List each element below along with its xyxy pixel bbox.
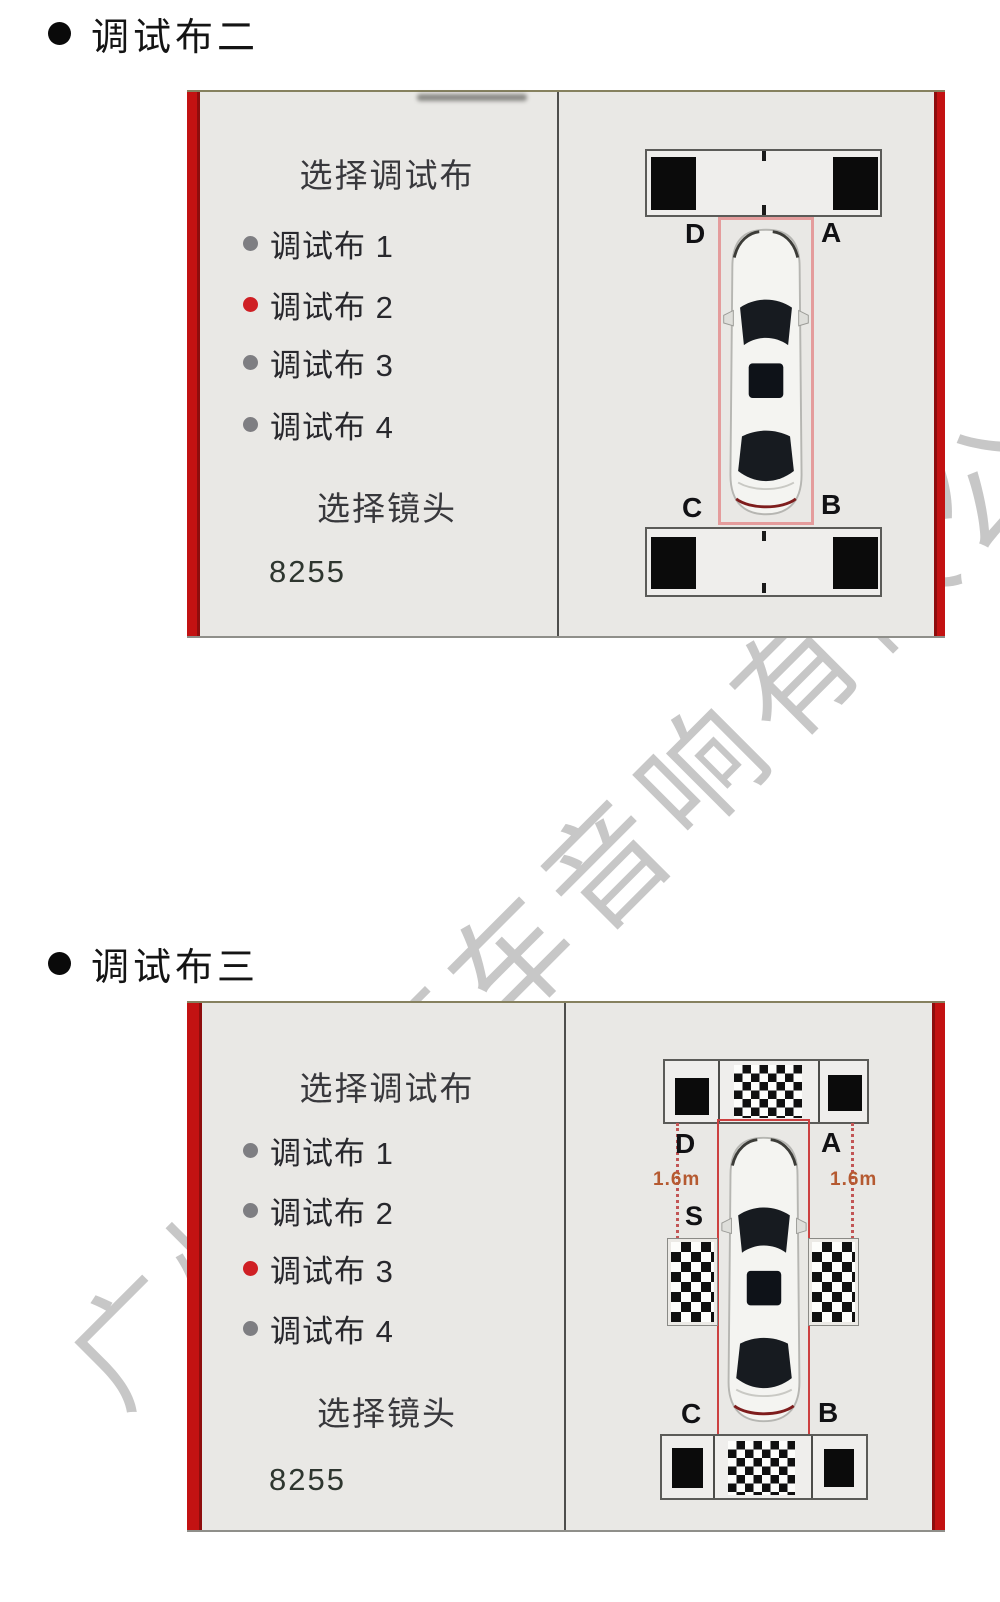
radio-cloth-3[interactable]: 调试布 3 (243, 1249, 394, 1287)
radio-icon-selected[interactable] (243, 1261, 258, 1276)
radio-icon[interactable] (243, 355, 258, 370)
center-tick (762, 205, 766, 215)
section-1-heading: 调试布二 (48, 6, 259, 61)
strip-cell-divider (811, 1436, 813, 1498)
distance-label-right: 1.6m (830, 1169, 877, 1191)
red-border-right (932, 1003, 945, 1530)
section-2-title: 调试布三 (91, 936, 259, 991)
page: 广州市汽车音响有限公司 调试布二 选择调试布 调试布 1 调试布 2 调试布 3… (0, 0, 1000, 1602)
corner-label-a: A (821, 1127, 841, 1159)
radio-icon[interactable] (243, 1321, 258, 1336)
panel-divider (557, 92, 559, 636)
black-square (833, 537, 878, 589)
car-top-view (720, 223, 812, 521)
red-border-right (934, 92, 945, 636)
checkerboard (734, 1065, 802, 1118)
corner-label-b: B (818, 1397, 838, 1429)
lens-value[interactable]: 8255 (269, 1462, 346, 1498)
distance-label-left: 1.6m (653, 1169, 700, 1191)
section-1-title: 调试布二 (91, 6, 259, 61)
bullet-icon (48, 22, 71, 45)
screenshot-debug-cloth-2: 选择调试布 调试布 1 调试布 2 调试布 3 调试布 4 选择镜头 8255 … (187, 90, 945, 638)
side-checkerboard-right (809, 1239, 858, 1325)
cloth-select-title: 选择调试布 (237, 149, 537, 197)
black-square (833, 157, 878, 210)
lens-value[interactable]: 8255 (269, 554, 346, 590)
black-square (675, 1078, 709, 1115)
car-top-view (719, 1124, 809, 1435)
bullet-icon (48, 952, 71, 975)
section-2-heading: 调试布三 (48, 936, 259, 991)
corner-label-d: D (675, 1128, 695, 1160)
lens-select-title: 选择镜头 (237, 482, 537, 530)
side-label-s: S (685, 1201, 703, 1232)
center-tick (762, 531, 766, 541)
strip-cell-divider (713, 1436, 715, 1498)
corner-label-c: C (682, 492, 702, 524)
radio-cloth-2[interactable]: 调试布 2 (243, 285, 394, 323)
radio-cloth-2[interactable]: 调试布 2 (243, 1191, 394, 1229)
strip-cell-divider (718, 1061, 720, 1122)
radio-icon[interactable] (243, 1203, 258, 1218)
strip-cell-divider (818, 1061, 820, 1122)
red-border-left (187, 92, 200, 636)
radio-cloth-1[interactable]: 调试布 1 (243, 1131, 394, 1169)
panel-divider (564, 1003, 566, 1530)
radio-cloth-4[interactable]: 调试布 4 (243, 1309, 394, 1347)
rear-calibration-strip (660, 1434, 868, 1500)
radio-cloth-1[interactable]: 调试布 1 (243, 224, 394, 262)
screenshot-debug-cloth-3: 选择调试布 调试布 1 调试布 2 调试布 3 调试布 4 选择镜头 8255 (187, 1001, 945, 1532)
corner-label-b: B (821, 489, 841, 521)
radio-cloth-3[interactable]: 调试布 3 (243, 343, 394, 381)
video-artifact (417, 94, 527, 101)
front-calibration-strip (663, 1059, 869, 1124)
black-square (672, 1448, 703, 1488)
radio-icon[interactable] (243, 236, 258, 251)
black-square (651, 537, 696, 589)
radio-cloth-4[interactable]: 调试布 4 (243, 405, 394, 443)
center-tick (762, 583, 766, 593)
corner-label-a: A (821, 217, 841, 249)
rear-calibration-strip (645, 527, 882, 597)
cloth-select-title: 选择调试布 (237, 1062, 537, 1110)
center-tick (762, 151, 766, 161)
corner-label-c: C (681, 1398, 701, 1430)
corner-label-d: D (685, 218, 705, 250)
radio-icon-selected[interactable] (243, 297, 258, 312)
radio-icon[interactable] (243, 417, 258, 432)
black-square (824, 1449, 854, 1487)
radio-icon[interactable] (243, 1143, 258, 1158)
lens-select-title: 选择镜头 (237, 1387, 537, 1435)
red-border-left (187, 1003, 202, 1530)
black-square (651, 157, 696, 210)
black-square (828, 1075, 862, 1111)
front-calibration-strip (645, 149, 882, 217)
side-checkerboard-left (668, 1239, 717, 1325)
checkerboard (728, 1441, 795, 1495)
